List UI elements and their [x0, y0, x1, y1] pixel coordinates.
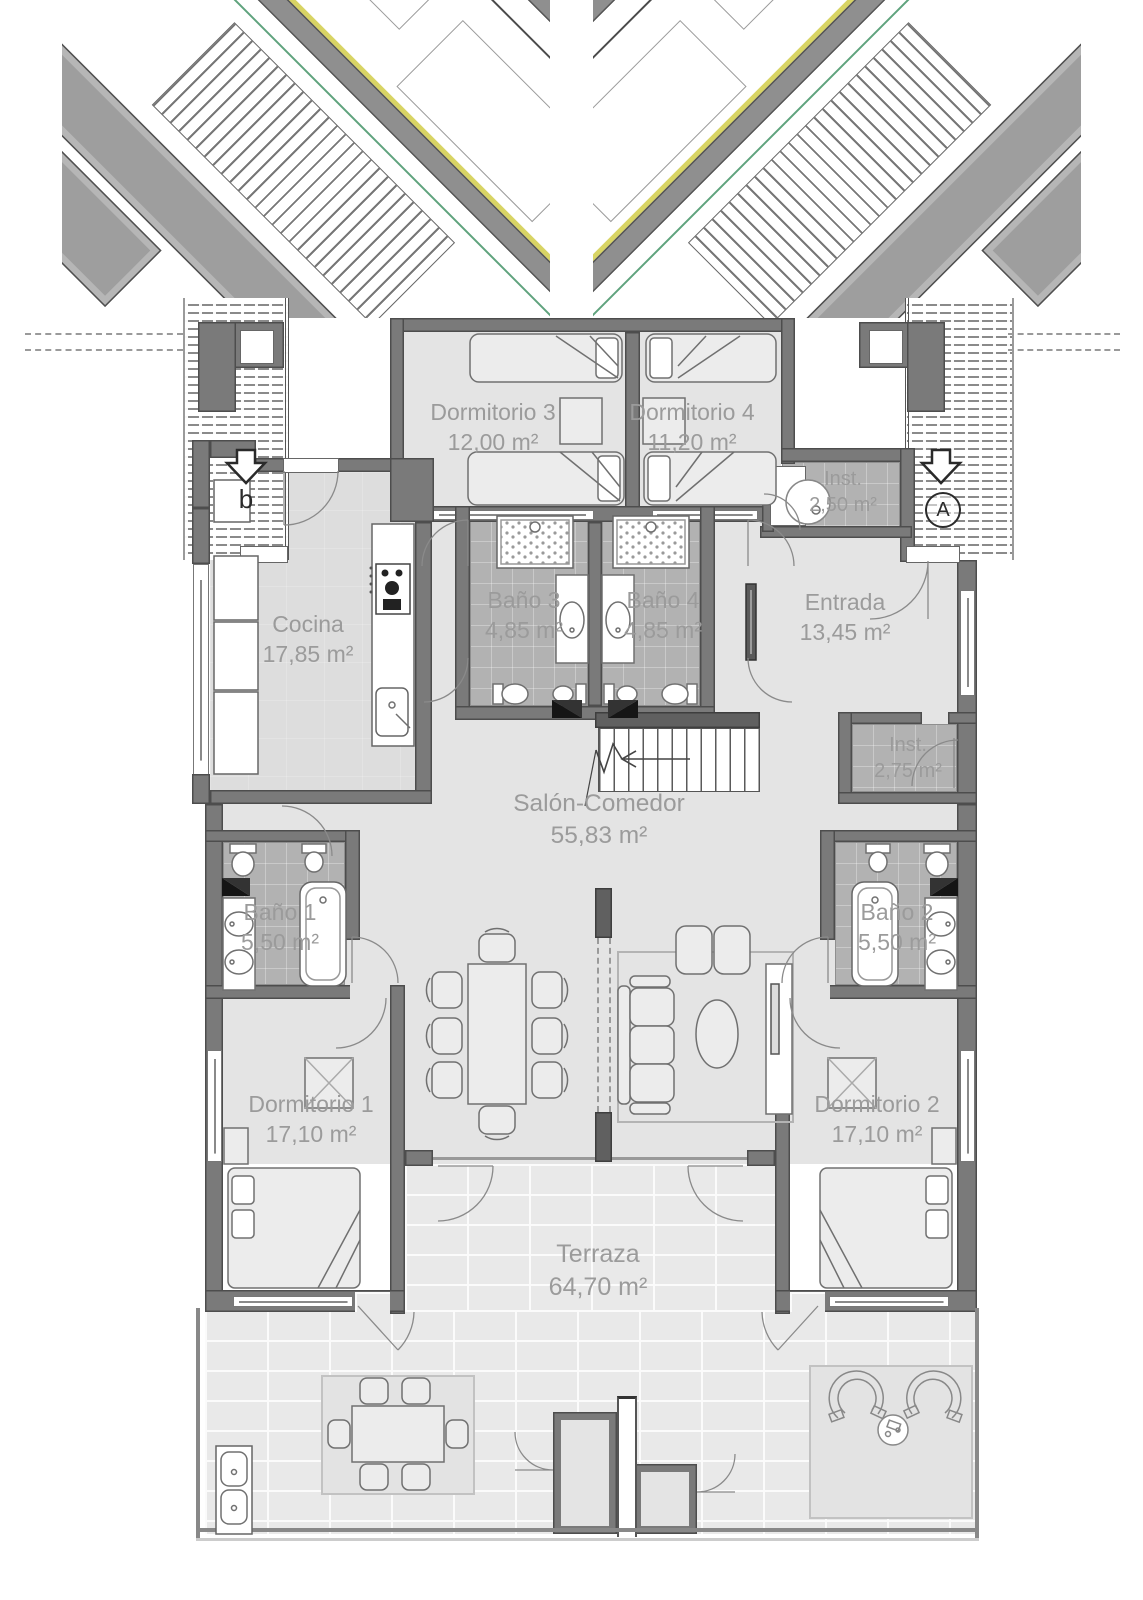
room-area: 4,85 m²: [485, 616, 563, 646]
room-name: Baño 3: [485, 586, 563, 616]
outdoor-sink: [216, 1446, 252, 1534]
room-area: 4,85 m²: [624, 616, 702, 646]
stair-marker-left: b: [239, 484, 253, 515]
room-label-terraza: Terraza 64,70 m²: [549, 1238, 648, 1303]
room-label-bano-2: Baño 2 5,50 m²: [858, 898, 936, 958]
room-area: 12,00 m²: [430, 428, 555, 458]
stove: [370, 564, 411, 614]
double-bed: [820, 1128, 956, 1288]
room-area: 13,45 m²: [800, 618, 891, 648]
room-name: Dormitorio 3: [430, 398, 555, 428]
stair-marker-letter: A: [936, 499, 949, 522]
room-area: 2,50 m²: [809, 492, 877, 518]
room-area: 11,20 m²: [629, 428, 754, 458]
lounge-set: [810, 1366, 972, 1518]
room-area: 5,50 m²: [858, 928, 936, 958]
room-label-dormitorio-1: Dormitorio 1 17,10 m²: [248, 1090, 373, 1150]
room-area: 64,70 m²: [549, 1271, 648, 1304]
room-label-inst-top: Inst. 2,50 m²: [809, 466, 877, 518]
terrace-dining-set: [322, 1376, 474, 1494]
room-name: Baño 1: [241, 898, 319, 928]
room-label-dormitorio-4: Dormitorio 4 11,20 m²: [629, 398, 754, 458]
room-name: Baño 4: [624, 586, 702, 616]
toilet: [230, 844, 256, 876]
room-name: Inst.: [809, 466, 877, 492]
room-name: Inst.: [874, 732, 942, 758]
room-name: Salón-Comedor: [513, 788, 685, 820]
bidet: [302, 844, 326, 872]
room-name: Dormitorio 2: [814, 1090, 939, 1120]
room-area: 17,85 m²: [263, 640, 354, 670]
toilet: [493, 684, 528, 704]
shower: [497, 516, 573, 568]
stair-marker-right: A: [925, 492, 961, 528]
toilet: [662, 684, 697, 704]
room-label-salon-comedor: Salón-Comedor 55,83 m²: [513, 788, 685, 852]
room-label-cocina: Cocina 17,85 m²: [263, 610, 354, 670]
floor-plan: Dormitorio 3 12,00 m² Dormitorio 4 11,20…: [0, 0, 1143, 1600]
room-name: Cocina: [263, 610, 354, 640]
room-name: Dormitorio 4: [629, 398, 754, 428]
room-label-dormitorio-3: Dormitorio 3 12,00 m²: [430, 398, 555, 458]
room-name: Entrada: [800, 588, 891, 618]
room-area: 5,50 m²: [241, 928, 319, 958]
room-area: 2,75 m²: [874, 758, 942, 784]
room-label-entrada: Entrada 13,45 m²: [800, 588, 891, 648]
room-name: Dormitorio 1: [248, 1090, 373, 1120]
room-label-bano-3: Baño 3 4,85 m²: [485, 586, 563, 646]
hall-cabinet: [746, 584, 756, 660]
shower: [613, 516, 689, 568]
bidet: [866, 844, 890, 872]
room-area: 17,10 m²: [814, 1120, 939, 1150]
kitchen-sink: [376, 688, 410, 736]
dining-set: [426, 928, 567, 1139]
room-name: Terraza: [549, 1238, 648, 1271]
room-label-inst-mid: Inst. 2,75 m²: [874, 732, 942, 784]
room-area: 17,10 m²: [248, 1120, 373, 1150]
double-bed: [224, 1128, 360, 1288]
room-label-bano-4: Baño 4 4,85 m²: [624, 586, 702, 646]
room-area: 55,83 m²: [513, 820, 685, 852]
toilet: [924, 844, 950, 876]
room-label-dormitorio-2: Dormitorio 2 17,10 m²: [814, 1090, 939, 1150]
sofa-set: [618, 926, 793, 1122]
room-label-bano-1: Baño 1 5,50 m²: [241, 898, 319, 958]
room-name: Baño 2: [858, 898, 936, 928]
